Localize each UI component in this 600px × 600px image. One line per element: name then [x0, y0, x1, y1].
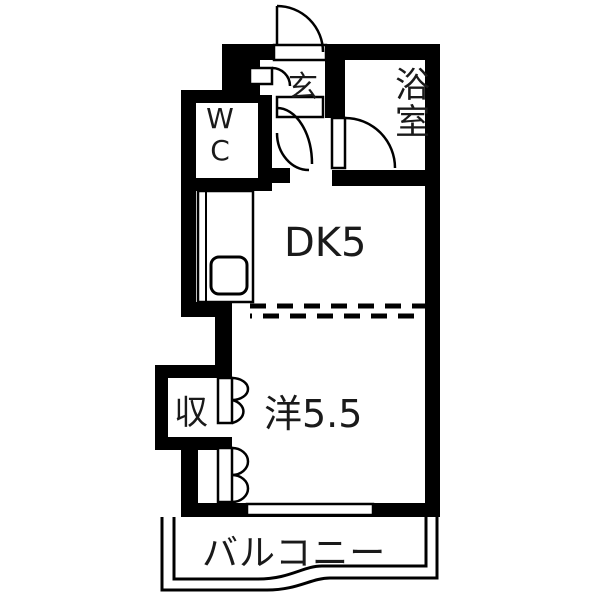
storage-label: 収 [174, 385, 208, 434]
kitchen-sink [211, 257, 247, 294]
wall-bath-bottom [332, 170, 425, 186]
kitchen-unit [198, 191, 253, 302]
window-balcony [247, 504, 373, 515]
hall-door-arc-2 [277, 133, 309, 170]
wc-door-leaf [250, 68, 272, 84]
wall-wc-bottom [181, 178, 272, 191]
wall-left-upper [181, 90, 196, 317]
western-room-label: 洋5.5 [264, 383, 362, 438]
closet-bifold-arcs-upper [232, 378, 248, 423]
closet-door-panel-lower [218, 448, 232, 502]
dining-kitchen-label: DK5 [284, 220, 366, 266]
room-divider-dashed [250, 306, 425, 316]
wall-wc-right [258, 95, 272, 178]
floorplan: 玄 浴室 WC DK5 収 洋5.5 バルコニー [0, 0, 600, 600]
entrance-threshold [274, 45, 326, 60]
bath-door-leaf [332, 118, 345, 168]
closet-door-panel-upper [218, 378, 232, 423]
wall-bath-left [325, 60, 345, 118]
closet-bifold-arcs-lower [232, 448, 248, 502]
toilet-label: WC [202, 103, 238, 167]
balcony-label: バルコニー [202, 524, 386, 576]
entrance-label: 玄 [288, 62, 318, 106]
wall-top [222, 44, 440, 60]
bathroom-label: 浴室 [384, 66, 435, 140]
